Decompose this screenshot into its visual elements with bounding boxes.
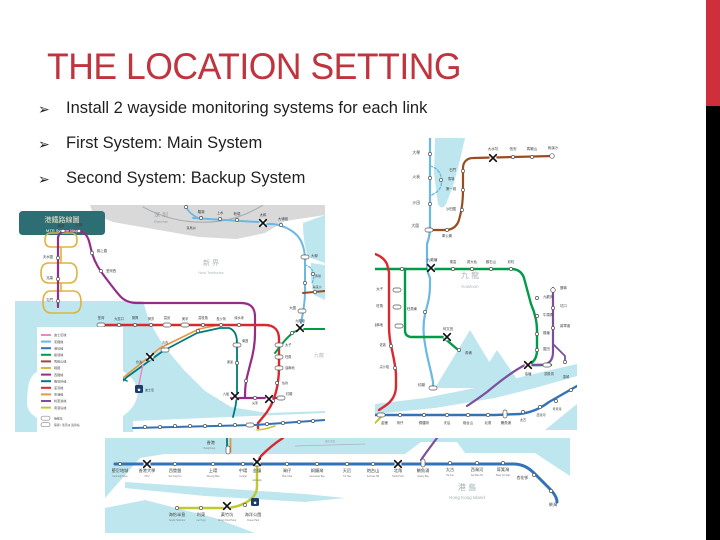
map-label: 佐敦: [282, 380, 288, 385]
map-label: 堅尼地城: [112, 467, 130, 474]
station-dot: [184, 205, 187, 208]
map-label: 奧運: [227, 359, 233, 364]
station-dot: [219, 323, 222, 326]
map-label: 美孚: [182, 316, 189, 321]
legend-label: 迪士尼綫: [54, 332, 66, 337]
station-dot: [530, 155, 533, 158]
map-label: 旺角東: [407, 306, 418, 311]
bullet-arrow-icon: ➢: [38, 99, 66, 118]
map-label: 灣仔: [283, 467, 292, 474]
interchange-station: [429, 386, 437, 390]
map-label: 西營盤: [169, 467, 182, 474]
station-dot: [428, 152, 431, 155]
map-label: 利東: [197, 511, 206, 518]
station-dot: [554, 399, 557, 402]
station-dot: [460, 208, 463, 211]
interchange-station: [233, 343, 241, 347]
slide: THE LOCATION SETTING ➢ Install 2 wayside…: [0, 0, 720, 540]
station-dot: [315, 462, 318, 465]
interchange-station: [97, 323, 105, 327]
map-label: 尖東: [252, 400, 258, 405]
station-dot: [509, 267, 512, 270]
interchange-station: [301, 255, 309, 259]
map-label: 錦上路: [97, 248, 108, 253]
map-label: 朗屏: [58, 223, 65, 228]
legend-label: 馬鞍山綫: [54, 359, 66, 364]
map-label: 西灣河: [471, 466, 484, 473]
terminus-glyph: ●: [253, 500, 257, 506]
map-label: 佐敦: [380, 342, 387, 347]
map-label: 九龍塘: [427, 257, 438, 262]
map-label: 九龍: [223, 391, 229, 396]
station-dot: [461, 169, 464, 172]
station-dot: [235, 361, 238, 364]
map-label: 馬場: [448, 176, 455, 181]
map-label: 海怡半島: [169, 511, 186, 518]
station-dot: [428, 202, 431, 205]
station-dot: [461, 188, 464, 191]
map-label: 寶琳: [560, 285, 567, 290]
map-label: Tin Hau: [343, 476, 352, 478]
map-label: 香港: [207, 439, 216, 446]
map-label: 長沙灣: [216, 316, 226, 321]
station-dot: [445, 413, 448, 416]
map-label: 樂富: [450, 259, 457, 264]
station-dot: [149, 323, 152, 326]
interchange-station: [161, 348, 169, 352]
map-label: 黃埔: [465, 350, 472, 355]
station-dot: [486, 413, 489, 416]
interchange-station: [277, 396, 285, 400]
bullet-list: ➢ Install 2 wayside monitoring systems f…: [38, 99, 427, 204]
map-label: 馬場: [315, 273, 321, 278]
station-dot: [118, 462, 121, 465]
legend-label: 東鐵綫: [54, 339, 63, 344]
map-label: Hong Kong Island: [449, 495, 485, 500]
map-label: 太古: [446, 466, 454, 473]
legend-label: 將軍澳綫: [54, 398, 66, 403]
legend-label: 荃灣綫: [54, 385, 63, 390]
map-label: 太古: [520, 417, 527, 422]
map-label: 荔景: [164, 315, 170, 320]
station-dot: [398, 413, 401, 416]
station-dot: [445, 228, 448, 231]
map-label: 屯門: [46, 297, 53, 302]
map-label: 恆安: [509, 146, 517, 151]
map-label: 大窩口: [114, 316, 124, 321]
map-label: Shau Kei Wan: [496, 475, 511, 477]
map-label: Central: [239, 475, 247, 478]
map-label: Wan Chai: [282, 476, 292, 478]
mtr-map-kowloon: 大學火炭馬場沙田大圍車公廟沙田圍第一城石門大水坑恆安馬鞍山烏溪沙旺角東紅磡九龍塘…: [375, 138, 577, 430]
interchange-station: [181, 323, 189, 327]
station-dot: [218, 423, 221, 426]
station-dot: [532, 473, 535, 476]
map-label: 金鐘: [381, 420, 388, 425]
legend-footnote: 羅湖 / 落馬洲 過境站: [54, 423, 80, 427]
legend-label: 西鐵綫: [54, 372, 63, 377]
station-dot: [201, 323, 204, 326]
interchange-station: [275, 355, 283, 359]
station-dot: [290, 331, 293, 334]
station-dot: [275, 381, 278, 384]
map-label: 天后: [444, 420, 451, 425]
station-dot: [521, 410, 524, 413]
legend-label: 觀塘綫: [54, 352, 63, 357]
station-dot: [237, 323, 240, 326]
station-dot: [345, 462, 348, 465]
map-label: 油麻地: [285, 365, 295, 370]
map-label: 沙田圍: [446, 206, 457, 211]
map-label: 九龍: [314, 352, 324, 359]
map-label: 九龍塘: [295, 318, 305, 323]
legend-label: 輕鐵: [54, 365, 60, 370]
map-label: 牛頭角: [543, 312, 553, 317]
map-label: 天水圍: [43, 254, 54, 259]
bullet-item: ➢ First System: Main System: [38, 134, 427, 169]
station-dot: [297, 420, 300, 423]
interchange-station: [393, 288, 401, 292]
station-dot: [551, 306, 554, 309]
map-label: 大埔墟: [278, 216, 289, 221]
map-label: 荔枝角: [198, 315, 208, 320]
station-dot: [423, 310, 426, 313]
map-label: 車公廟: [442, 233, 453, 238]
station-dot: [133, 323, 136, 326]
map-label: 烏溪沙: [548, 145, 559, 150]
station-dot: [551, 288, 556, 293]
map-label: 東區走廊: [325, 439, 336, 443]
interchange-station: [543, 363, 551, 367]
station-dot: [439, 178, 442, 181]
map-label: Shenzhen: [154, 220, 169, 224]
map-label: 杏花邨: [517, 475, 529, 480]
map-label: 北角: [485, 420, 492, 425]
map-label: 調景嶺: [544, 371, 554, 376]
station-dot: [569, 388, 572, 391]
station-dot: [279, 223, 282, 226]
station-dot: [90, 251, 93, 254]
map-label: 坑口: [560, 303, 567, 308]
map-label: 大圍: [289, 305, 296, 310]
map-label: 荃灣: [98, 315, 105, 320]
station-dot: [422, 413, 425, 416]
station-dot: [233, 423, 236, 426]
bullet-text: Second System: Backup System: [66, 169, 305, 188]
station-dot: [143, 425, 146, 428]
interchange-station: [275, 366, 283, 370]
map-label: Fortress Hill: [367, 475, 380, 478]
map-label: 黃竹坑: [221, 511, 234, 518]
mtr-map-overview-panel: ✈●●港鐵路線圖MTR System Map深 圳Shenzhen羅湖上水粉嶺太…: [15, 205, 325, 432]
map-label: 尖沙咀: [379, 364, 389, 369]
map-label: 中環: [239, 467, 248, 474]
map-label: Sai Wan Ho: [471, 475, 484, 477]
map-label: Lei Tung: [197, 520, 207, 522]
map-label: 上環: [209, 467, 218, 474]
map-label: 落馬洲: [186, 225, 195, 230]
interchange-station: [395, 324, 403, 328]
map-label: 石門: [449, 168, 456, 172]
station-dot: [563, 360, 566, 363]
interchange-station: [421, 459, 425, 467]
map-label: 紅磡: [418, 382, 426, 387]
map-label: 藍田: [543, 346, 550, 351]
interchange-station: [377, 413, 385, 417]
station-dot: [56, 256, 59, 259]
map-label: 港 島: [458, 482, 476, 492]
map-label: 青衣: [162, 340, 169, 345]
map-label: 港鐵路線圖: [45, 215, 80, 224]
map-label: 大學: [412, 150, 420, 155]
map-label: 新 界: [203, 258, 219, 267]
map-label: 九龍灣: [543, 294, 554, 299]
legend-symbol: [41, 423, 50, 427]
station-dot: [199, 216, 202, 219]
map-label: MTR System Map: [46, 228, 79, 233]
map-label: 炮台山: [367, 467, 380, 474]
station-dot: [241, 462, 244, 465]
interchange-station: [275, 343, 283, 347]
interchange-station: [503, 410, 507, 418]
station-dot: [99, 269, 102, 272]
station-dot: [188, 424, 191, 427]
station-dot: [511, 155, 514, 158]
station-dot: [244, 379, 247, 382]
station-dot: [475, 461, 478, 464]
map-label: 深水埗: [234, 315, 244, 320]
map-label: Sai Ying Pun: [168, 476, 182, 478]
map-label: 葵芳: [148, 316, 154, 321]
station-dot: [451, 267, 454, 270]
station-dot: [428, 176, 431, 179]
map-label: Causeway Bay: [309, 476, 325, 478]
station-dot: [313, 290, 316, 293]
map-label: 太子: [285, 342, 292, 347]
mtr-map-island: ●香港Hong Kong東區走廊堅尼地城香港大學西營盤上環中環金鐘灣仔銅鑼灣天后…: [105, 438, 570, 533]
map-label: Hong Kong: [204, 448, 216, 450]
map-label: 觀塘: [543, 330, 550, 335]
station-dot: [535, 348, 538, 351]
map-label: Kowloon: [461, 284, 479, 289]
bullet-item: ➢ Install 2 wayside monitoring systems f…: [38, 99, 427, 134]
map-label: 炮台山: [463, 420, 474, 425]
legend-symbol: [41, 416, 50, 420]
map-label: 銅鑼灣: [419, 420, 430, 425]
map-label: 筲箕灣: [497, 466, 510, 473]
bullet-text: First System: Main System: [66, 134, 262, 153]
station-dot: [535, 332, 538, 335]
station-dot: [175, 506, 178, 509]
station-dot: [253, 396, 256, 399]
map-label: 荃灣西: [106, 268, 117, 273]
map-label: 兆康: [46, 275, 53, 280]
map-label: 火炭: [412, 174, 420, 179]
map-label: 西灣河: [536, 412, 545, 417]
station-dot: [457, 348, 460, 351]
interchange-station: [393, 305, 401, 309]
map-label: 金鐘: [253, 467, 262, 473]
station-dot: [303, 281, 306, 284]
map-label: 北角: [394, 467, 402, 474]
map-label: 大學: [311, 253, 318, 258]
page-title: THE LOCATION SETTING: [47, 46, 461, 88]
station-dot: [549, 489, 552, 492]
station-dot: [389, 344, 392, 347]
interchange-station: [246, 423, 254, 427]
station-dot: [211, 462, 214, 465]
bullet-item: ➢ Second System: Backup System: [38, 169, 427, 204]
station-dot: [448, 461, 451, 464]
interchange-station: [226, 446, 230, 454]
station-dot: [265, 422, 268, 425]
legend-label: 東涌綫: [54, 392, 63, 397]
station-dot: [56, 277, 59, 280]
map-label: 烏溪沙: [312, 284, 321, 289]
station-dot: [199, 506, 202, 509]
map-label: 何文田: [443, 326, 454, 331]
map-label: 馬鞍山: [527, 146, 538, 151]
map-label: 上水: [217, 210, 224, 215]
map-label: 紅磡: [286, 391, 292, 396]
station-dot: [56, 299, 59, 302]
map-label: 香港大學: [139, 467, 156, 474]
map-label: Quarry Bay: [417, 475, 429, 478]
map-label: 筲箕灣: [552, 406, 561, 411]
station-dot: [173, 462, 176, 465]
map-label: 太和: [260, 212, 267, 217]
map-label: 大水坑: [488, 146, 499, 151]
map-label: Tai Koo: [446, 475, 454, 477]
map-label: 鰂魚涌: [501, 420, 512, 425]
map-label: 太子: [376, 286, 383, 291]
interchange-station: [298, 309, 306, 313]
mtr-map-overview: ✈●●港鐵路線圖MTR System Map深 圳Shenzhen羅湖上水粉嶺太…: [15, 205, 325, 432]
bullet-arrow-icon: ➢: [38, 134, 66, 153]
station-dot: [466, 413, 469, 416]
map-label: 深 圳: [154, 211, 168, 219]
legend-footnote: 轉綫站: [54, 416, 63, 420]
interchange-station: [163, 323, 171, 327]
map-label: 柴灣: [549, 501, 557, 508]
map-label: 羅湖: [198, 209, 205, 214]
station-dot: [311, 419, 314, 422]
map-label: 油麻地: [375, 322, 384, 327]
map-label: 將軍澳: [560, 323, 571, 328]
map-label: 第一城: [446, 186, 457, 191]
station-dot: [489, 267, 492, 270]
map-label: Ocean Park: [247, 519, 260, 522]
map-label: 康城: [563, 374, 570, 379]
station-dot: [203, 424, 206, 427]
map-label: 銅鑼灣: [311, 467, 324, 474]
station-dot: [501, 461, 504, 464]
map-label: 鑽石山: [486, 259, 497, 264]
mtr-map-kowloon-panel: 大學火炭馬場沙田大圍車公廟沙田圍第一城石門大水坑恆安馬鞍山烏溪沙旺角東紅磡九龍塘…: [375, 138, 577, 430]
station-dot: [218, 217, 221, 220]
map-label: 粉嶺: [234, 211, 241, 216]
map-label: 迪士尼: [145, 387, 154, 392]
map-label: North Point: [392, 475, 404, 478]
map-label: Admiralty: [252, 479, 262, 482]
legend-label: 港島綫: [54, 345, 63, 350]
station-dot: [158, 425, 161, 428]
map-label: 鰂魚涌: [417, 467, 430, 474]
map-label: 油塘: [525, 371, 532, 376]
map-label: HKU: [145, 476, 150, 478]
station-dot: [235, 218, 238, 221]
station-dot: [243, 503, 246, 506]
map-label: South Horizons: [169, 519, 186, 522]
station-dot: [117, 323, 120, 326]
legend-label: 南港島綫: [54, 405, 66, 410]
map-label: 天后: [343, 467, 351, 474]
map-label: Wong Chuk Hang: [218, 520, 237, 522]
legend-label: 機場快綫: [54, 378, 66, 383]
station-dot: [393, 366, 396, 369]
terminus-glyph: ●: [137, 387, 141, 393]
station-dot: [173, 424, 176, 427]
bullet-text: Install 2 wayside monitoring systems for…: [66, 99, 427, 118]
map-label: 元朗: [76, 222, 83, 227]
station-dot: [281, 421, 284, 424]
accent-stripe-black: [706, 106, 720, 540]
map-label: Sheung Wan: [206, 476, 220, 478]
map-label: 大圍: [411, 223, 419, 228]
interchange-station: [425, 228, 433, 232]
station-dot: [550, 154, 555, 159]
map-label: 南昌: [242, 338, 248, 343]
station-dot: [371, 462, 374, 465]
bullet-arrow-icon: ➢: [38, 169, 66, 188]
map-label: 黃大仙: [467, 259, 478, 264]
map-label: 九 龍: [461, 270, 479, 280]
station-dot: [196, 329, 199, 332]
map-label: 彩虹: [508, 259, 515, 264]
station-dot: [538, 405, 541, 408]
map-label: New Territories: [198, 271, 223, 275]
map-label: 灣仔: [397, 420, 404, 425]
map-label: Kennedy Town: [112, 476, 128, 478]
station-dot: [400, 267, 403, 270]
map-label: 海洋公園: [245, 511, 262, 518]
station-dot: [285, 462, 288, 465]
accent-stripe-red: [706, 0, 720, 106]
station-dot: [551, 326, 554, 329]
map-label: 欣澳: [136, 359, 142, 364]
mtr-map-island-panel: ●香港Hong Kong東區走廊堅尼地城香港大學西營盤上環中環金鐘灣仔銅鑼灣天后…: [105, 438, 570, 533]
map-label: 葵興: [132, 315, 139, 320]
map-label: 沙田: [412, 200, 420, 205]
station-dot: [535, 314, 538, 317]
map-label: 旺角: [376, 303, 383, 308]
map-label: 旺角: [285, 354, 291, 359]
station-dot: [535, 296, 538, 299]
legend-box: [37, 327, 123, 432]
